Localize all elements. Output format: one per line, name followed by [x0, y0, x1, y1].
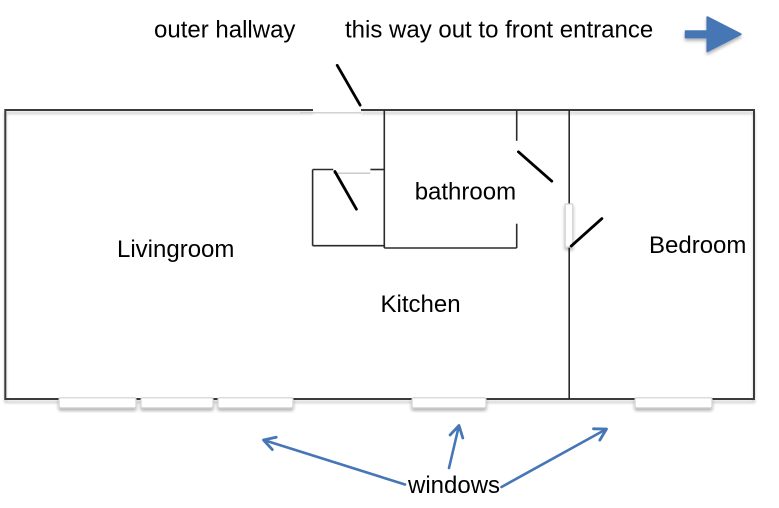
- svg-text:windows: windows: [407, 472, 500, 499]
- svg-text:outer hallway: outer hallway: [154, 17, 295, 44]
- svg-text:Bedroom: Bedroom: [649, 232, 746, 259]
- svg-text:Livingroom: Livingroom: [117, 236, 234, 263]
- svg-text:bathroom: bathroom: [415, 179, 516, 206]
- svg-text:Kitchen: Kitchen: [381, 291, 461, 318]
- svg-text:this way out to front entrance: this way out to front entrance: [345, 17, 653, 44]
